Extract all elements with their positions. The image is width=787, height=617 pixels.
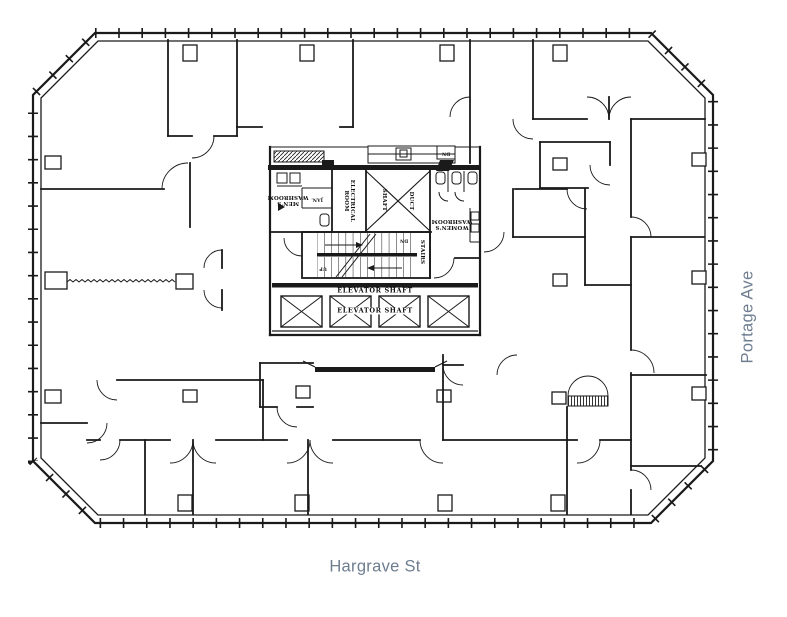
toilet bbox=[320, 214, 329, 226]
label-elevator-shaft-inner: ELEVATOR SHAFT bbox=[335, 307, 415, 314]
label-stairs-up: UP bbox=[319, 265, 327, 270]
south-band bbox=[303, 361, 447, 372]
label-janitor: JAN. bbox=[311, 196, 323, 201]
toilet bbox=[436, 172, 445, 184]
stairwell bbox=[302, 232, 430, 278]
label-duct: DUCT bbox=[408, 192, 414, 211]
street-label-portage: Portage Ave bbox=[739, 271, 758, 364]
womens-washroom bbox=[436, 171, 480, 242]
zigzag-partition bbox=[67, 280, 175, 283]
label-strip-dn: DN bbox=[442, 150, 450, 155]
street-label-hargrave: Hargrave St bbox=[329, 558, 420, 577]
label-elevator-shaft-header: ELEVATOR SHAFT bbox=[337, 287, 413, 294]
shaft-duct bbox=[366, 171, 430, 231]
counter-hatch bbox=[274, 151, 324, 162]
label-stairs: STAIRS bbox=[419, 240, 425, 264]
label-electrical-room: ELECTRICAL ROOM bbox=[343, 180, 355, 222]
label-womens-washroom: WOMEN'S WASHROOM bbox=[431, 218, 472, 230]
floor-plan-page: MEN'S WASHROOM JAN. ELECTRICAL ROOM SHAF… bbox=[0, 0, 787, 617]
toilet bbox=[468, 172, 477, 184]
mens-washroom bbox=[274, 151, 332, 226]
label-stairs-dn: DN bbox=[400, 237, 408, 242]
label-shaft: SHAFT bbox=[381, 189, 387, 211]
label-mens-washroom: MEN'S WASHROOM bbox=[267, 194, 308, 206]
toilet bbox=[452, 172, 461, 184]
servery-counter bbox=[568, 396, 608, 406]
